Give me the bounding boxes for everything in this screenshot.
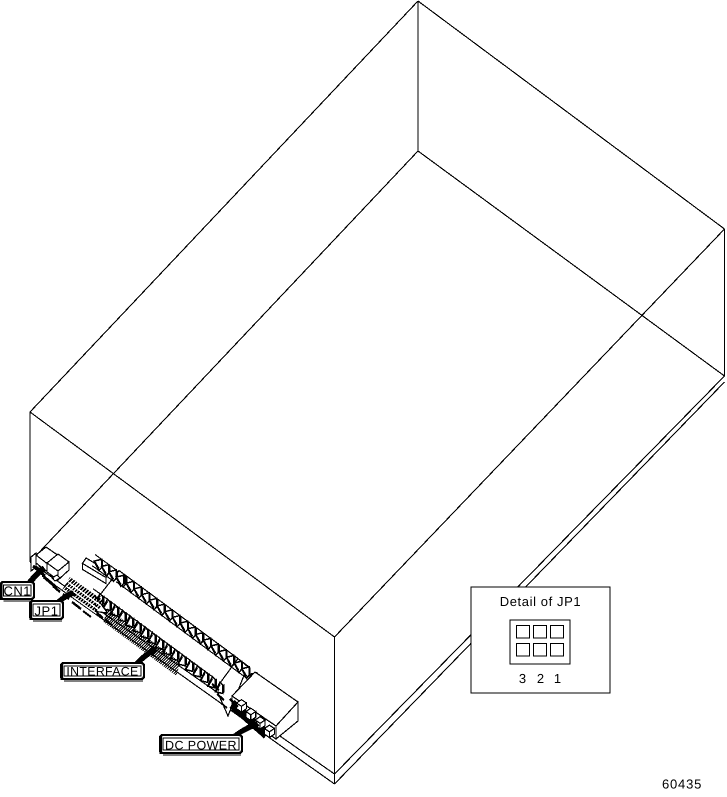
svg-text:DC POWER: DC POWER bbox=[165, 738, 237, 752]
svg-text:INTERFACE: INTERFACE bbox=[66, 664, 138, 678]
svg-text:JP1: JP1 bbox=[35, 603, 59, 618]
svg-text:3: 3 bbox=[519, 671, 526, 686]
svg-text:2: 2 bbox=[537, 671, 544, 686]
svg-text:1: 1 bbox=[554, 671, 561, 686]
svg-text:CN1: CN1 bbox=[3, 583, 31, 598]
svg-text:60435: 60435 bbox=[662, 777, 702, 792]
svg-text:Detail of JP1: Detail of JP1 bbox=[500, 594, 582, 609]
